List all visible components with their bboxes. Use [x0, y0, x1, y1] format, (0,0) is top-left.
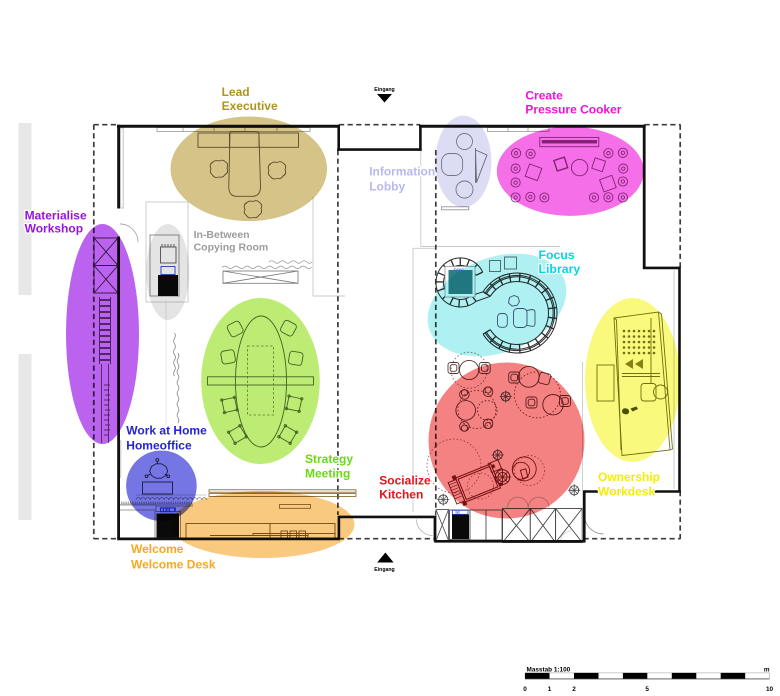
- svg-text:Lobby: Lobby: [369, 180, 405, 194]
- svg-text:Library: Library: [539, 262, 581, 276]
- svg-text:0: 0: [523, 686, 527, 693]
- svg-text:In-Between: In-Between: [194, 229, 250, 241]
- svg-text:Homeoffice: Homeoffice: [126, 438, 192, 452]
- svg-text:Socialize: Socialize: [379, 473, 431, 487]
- svg-text:1: 1: [548, 686, 552, 693]
- svg-text:Eingang: Eingang: [374, 567, 394, 573]
- svg-text:Materialise: Materialise: [25, 208, 87, 222]
- svg-text:Masstab 1:100: Masstab 1:100: [527, 667, 571, 674]
- svg-text:Information: Information: [369, 165, 435, 179]
- svg-text:Executive: Executive: [222, 99, 278, 113]
- svg-text:Pressure Cooker: Pressure Cooker: [525, 103, 621, 117]
- svg-text:Work at Home: Work at Home: [126, 424, 207, 438]
- svg-text:Ownership: Ownership: [598, 470, 660, 484]
- svg-text:Workshop: Workshop: [25, 221, 83, 235]
- svg-text:Strategy: Strategy: [305, 452, 353, 466]
- svg-text:Focus: Focus: [539, 248, 575, 262]
- svg-text:10: 10: [766, 686, 774, 693]
- svg-text:Copying Room: Copying Room: [194, 241, 269, 253]
- svg-text:Welcome: Welcome: [131, 542, 184, 556]
- svg-text:Kitchen: Kitchen: [379, 488, 423, 502]
- svg-text:Eingang: Eingang: [374, 87, 394, 93]
- svg-text:m: m: [764, 667, 770, 674]
- svg-text:Welcome Desk: Welcome Desk: [131, 557, 216, 571]
- svg-text:5: 5: [645, 686, 649, 693]
- svg-text:Meeting: Meeting: [305, 466, 350, 480]
- svg-text:Workdesk: Workdesk: [598, 484, 655, 498]
- svg-text:Lead: Lead: [222, 85, 250, 99]
- svg-text:Create: Create: [525, 89, 563, 103]
- svg-text:2: 2: [572, 686, 576, 693]
